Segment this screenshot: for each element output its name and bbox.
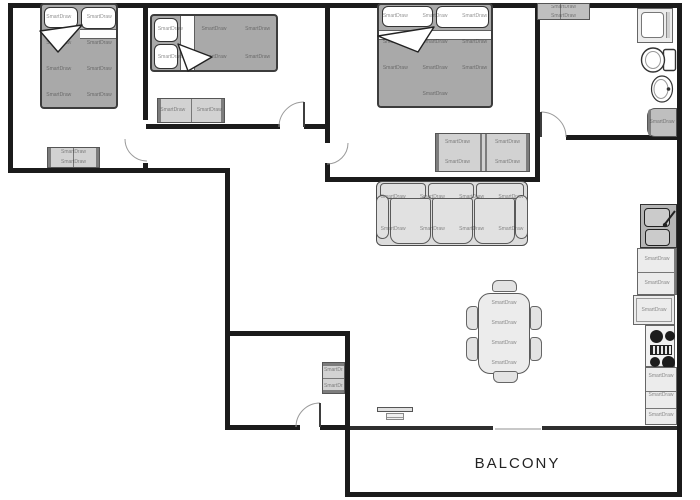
bed-double-bedroom2: SmartDrawSmartDrawSmartDrawSmartDrawSmar… — [150, 14, 278, 72]
watermark-text: SmartDraw — [160, 108, 185, 113]
wall-entry-bottom-left — [225, 425, 300, 430]
watermark-text: SmartDraw — [648, 374, 673, 379]
washer-door — [641, 12, 664, 38]
dresser-bedroom1: SmartDrawSmartDraw — [47, 147, 100, 168]
watermark-text: SmartDraw — [491, 361, 516, 366]
counter-cap — [674, 249, 676, 294]
watermark-text: SmartDraw — [551, 14, 576, 18]
sink-basin — [644, 208, 670, 227]
bed-double-bedroom1: SmartDrawSmartDrawSmartDrawSmartDrawSmar… — [40, 3, 118, 109]
sink-bowl-inner — [654, 80, 668, 99]
watermark-text: SmartDraw — [245, 27, 270, 32]
toilet — [642, 48, 676, 72]
watermark-text: SmartDraw — [495, 160, 520, 165]
wall-bedroom2-bottom — [146, 124, 280, 129]
toilet-tank — [664, 50, 676, 71]
dresser-end-cap — [323, 390, 344, 393]
pillow — [154, 44, 178, 69]
tv-stand — [386, 413, 404, 420]
wall-bedroom2-bedroom3-divider — [325, 3, 330, 143]
dining-chair-right-2 — [530, 337, 542, 361]
wall-bedroom1-bottom — [8, 168, 230, 173]
pillow — [382, 6, 433, 27]
watermark-text: SmartDraw — [551, 5, 576, 10]
counter-divider — [638, 272, 676, 273]
sofa-armrest-right — [515, 195, 528, 239]
watermark-text: SmartDraw — [648, 393, 673, 398]
watermark-text: SmartDraw — [46, 67, 71, 72]
vanity-cabinet-bathroom: SmartDrawSmartDraw — [537, 3, 590, 20]
watermark-text: SmartDraw — [383, 66, 408, 71]
watermark-text: SmartDraw — [201, 55, 226, 60]
dining-chair-bottom — [493, 371, 518, 383]
dresser-end-cap — [48, 148, 51, 167]
watermark-text: SmartDraw — [445, 160, 470, 165]
watermark-layer: SmartDrawSmartDrawSmartDraw — [647, 369, 675, 423]
watermark-text: SmartDraw — [491, 301, 516, 306]
dresser-end-cap — [158, 99, 161, 122]
dresser-end-cap — [323, 363, 344, 366]
watermark-text: SmartDraw — [46, 41, 71, 46]
door-arc-entry — [296, 403, 320, 427]
pillow — [81, 7, 116, 29]
watermark-text: SmartDraw — [491, 341, 516, 346]
pillow — [436, 6, 489, 28]
wall-bedroom2-door-stub — [304, 124, 327, 129]
bed-sheet-stripe — [379, 30, 491, 40]
dresser-end-cap — [96, 148, 99, 167]
dresser-divider — [480, 134, 482, 171]
watermark-text: SmartDraw — [422, 40, 447, 45]
dresser-divider — [73, 148, 74, 167]
watermark-layer: SmartDraw — [649, 110, 675, 135]
watermark-text: SmartDraw — [46, 93, 71, 98]
dresser-divider — [191, 99, 192, 122]
burner — [665, 331, 675, 341]
watermark-text: SmartDraw — [201, 27, 226, 32]
sink-faucet — [667, 87, 671, 91]
dining-chair-right-1 — [530, 306, 542, 330]
watermark-text: SmartDraw — [644, 257, 669, 262]
dresser-end-cap — [436, 134, 439, 171]
wall-livingroom-balcony-left — [350, 426, 493, 430]
bed-sheet-stripe — [180, 16, 195, 70]
kitchen-counter-upper: SmartDrawSmartDraw — [637, 248, 677, 295]
washer-unit — [637, 8, 673, 43]
wall-bedroom1-bedroom2-divider — [143, 3, 148, 120]
dresser-end-cap — [221, 99, 224, 122]
counter-divider — [646, 408, 676, 409]
toilet-bowl — [642, 48, 665, 72]
kitchen-counter-lower: SmartDrawSmartDrawSmartDraw — [645, 367, 677, 425]
wall-exterior-left — [8, 3, 13, 173]
wall-bedroom1-door-stub — [143, 163, 148, 173]
wall-balcony-bottom — [345, 492, 682, 497]
dresser-end-cap — [526, 134, 529, 171]
dresser-bedroom2: SmartDrawSmartDraw — [157, 98, 225, 123]
dining-chair-left-1 — [466, 306, 478, 330]
watermark-text: SmartDraw — [324, 368, 343, 373]
dishwasher-door — [636, 298, 672, 322]
tv-stand-line — [387, 417, 403, 418]
pillow — [44, 7, 78, 28]
dining-table: SmartDrawSmartDrawSmartDrawSmartDraw — [478, 293, 530, 374]
washer-control-panel — [666, 12, 670, 38]
dresser-entry-room: SmartDrawSmartDraw — [322, 362, 345, 394]
tv-screen — [377, 407, 413, 412]
watermark-text: SmartDraw — [197, 108, 222, 113]
watermark-text: SmartDraw — [648, 413, 673, 418]
watermark-text: SmartDraw — [87, 41, 112, 46]
sofa-seat-cushion — [474, 198, 515, 244]
wall-hall-left — [225, 168, 230, 430]
watermark-text: SmartDraw — [649, 120, 674, 125]
wall-bedroom3-bathroom-divider — [535, 3, 540, 182]
door-arc-hall — [327, 143, 348, 164]
balcony-label: BALCONY — [455, 455, 580, 472]
dresser-divider — [485, 134, 487, 171]
pillow — [154, 18, 178, 42]
counter-divider — [646, 391, 676, 392]
watermark-text: SmartDraw — [495, 140, 520, 145]
dining-chair-left-2 — [466, 337, 478, 361]
toilet-bowl-inner — [646, 52, 661, 69]
watermark-text: SmartDraw — [245, 55, 270, 60]
floor-plan: SmartDrawSmartDrawSmartDrawSmartDrawSmar… — [0, 0, 700, 500]
door-arc-bedroom1 — [125, 139, 147, 161]
watermark-text: SmartDraw — [324, 384, 343, 389]
kitchen-sink-unit — [640, 204, 677, 248]
dresser-divider — [560, 4, 561, 19]
watermark-text: SmartDraw — [383, 40, 408, 45]
watermark-text: SmartDraw — [87, 93, 112, 98]
wall-exterior-right — [677, 3, 682, 497]
dresser-divider — [323, 378, 344, 379]
bed-sheet-stripe — [80, 29, 116, 39]
wall-balcony-left — [345, 425, 350, 497]
watermark-text: SmartDraw — [491, 321, 516, 326]
watermark-text: SmartDraw — [422, 92, 447, 97]
sink-bowl — [652, 76, 673, 102]
bed-double-bedroom3: SmartDrawSmartDrawSmartDrawSmartDrawSmar… — [377, 3, 493, 108]
watermark-text: SmartDraw — [462, 66, 487, 71]
stove-cooktop — [645, 325, 675, 367]
burner — [650, 357, 660, 367]
watermark-layer: SmartDrawSmartDraw — [539, 5, 588, 18]
door-arc-bedroom2 — [279, 102, 304, 127]
watermark-text: SmartDraw — [644, 281, 669, 286]
sofa-three-seat: SmartDrawSmartDrawSmartDrawSmartDrawSmar… — [376, 181, 528, 246]
wall-entry-room-top — [225, 331, 350, 336]
bathroom-sink — [652, 76, 673, 102]
door-arc-bathroom — [541, 112, 566, 137]
stove-grill — [650, 345, 672, 355]
dresser-end-cap — [648, 109, 651, 136]
bathroom-cabinet: SmartDraw — [647, 108, 677, 137]
dishwasher: SmartDraw — [633, 295, 675, 325]
burner — [650, 330, 663, 343]
sink-basin — [645, 229, 670, 246]
sofa-armrest-left — [376, 195, 389, 239]
watermark-text: SmartDraw — [87, 67, 112, 72]
wall-entry-room-right — [345, 331, 350, 430]
watermark-layer: SmartDrawSmartDrawSmartDrawSmartDraw — [437, 135, 528, 170]
watermark-text: SmartDraw — [422, 66, 447, 71]
watermark-text: SmartDraw — [462, 40, 487, 45]
wall-livingroom-balcony-right — [542, 426, 677, 430]
dining-chair-top — [492, 280, 517, 292]
watermark-text: SmartDraw — [445, 140, 470, 145]
watermark-layer: SmartDrawSmartDrawSmartDrawSmartDraw — [480, 295, 528, 372]
media-dresser-bedroom3: SmartDrawSmartDrawSmartDrawSmartDraw — [435, 133, 530, 172]
sofa-seat-cushion — [390, 198, 431, 244]
sofa-back-cushion — [428, 183, 474, 199]
sofa-seat-cushion — [432, 198, 473, 244]
